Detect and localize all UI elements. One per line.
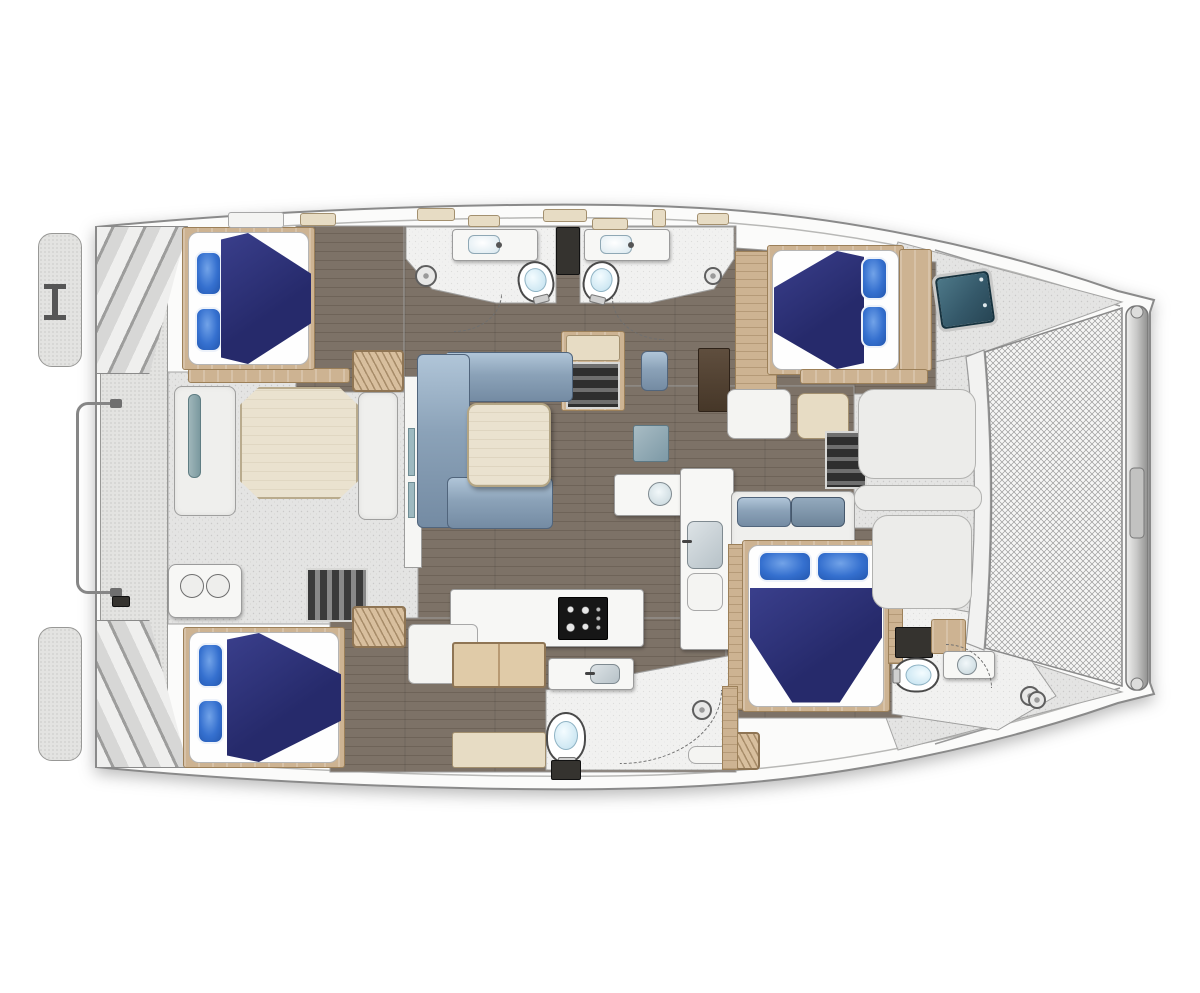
platform-cleat-1 [112,596,130,607]
stbd-fwd-settee-cushion-2 [791,497,845,527]
stbd-head-toilet-base [551,760,581,780]
stbd-hull-wood-strip [722,686,738,770]
port-aft-head-door-arc [454,294,502,332]
floor-plan [0,0,1200,993]
port-companionway-stairs [566,362,620,409]
wardrobe-port-aft [352,350,404,392]
salon-floor-hatch [633,425,669,462]
roof-hatch-6 [652,209,666,227]
port-fwd-head-basin [600,235,632,254]
port-aft-pillow-1 [195,251,222,296]
port-aft-cabin-wall [188,368,350,383]
port-fwd-pillow-1 [861,257,888,300]
stbd-head-sink [590,664,620,684]
roof-hatch-5 [592,218,628,230]
nav-seat-cushion [641,351,668,391]
stbd-fwd-head-vanity-dark [895,627,933,658]
swim-panel-bottom [38,627,82,761]
port-aft-shower-rose [415,265,437,287]
port-fwd-shower-rose [704,267,722,285]
wetbar-basin-right [206,574,230,598]
cockpit-table [240,387,358,499]
port-companionway-landing [566,335,620,361]
galley-sink [687,521,723,569]
salon-door-glass-1 [408,428,415,476]
roof-hatch-7 [697,213,729,225]
port-fwd-pillow-2 [861,305,888,348]
fwd-cockpit-walkway [854,485,982,511]
port-fwd-cabin-wall [800,369,928,384]
roof-hatch-1 [300,213,336,226]
salon-table [467,403,551,487]
salon-door-glass-2 [408,482,415,518]
port-aft-head-toilet [513,257,558,306]
fwd-cockpit-seat-bottom [872,515,972,609]
stern-rail [76,402,116,594]
stbd-aft-pillow-1 [197,643,224,688]
stbd-fwd-pillow-2 [816,551,870,582]
nav-console [698,348,730,412]
port-fwd-headboard-shelf [899,249,932,371]
galley-counter-aft [450,589,644,647]
stbd-hull-drawers [452,642,546,688]
stbd-head-toilet [546,712,586,764]
cockpit-bench-port [174,386,236,516]
foredeck-bolt [1028,691,1046,709]
stbd-fwd-head-toilet [894,658,940,693]
wardrobe-stbd-aft [352,606,406,648]
stbd-hull-bench-low [452,732,546,768]
stbd-fwd-settee-cushion-1 [737,497,791,527]
transom-steps-port [96,226,188,374]
roof-hatch-3 [468,215,500,227]
fwd-door-bench [727,389,791,439]
wetbar-basin-left [180,574,204,598]
roof-hatch-2 [417,208,455,221]
coachroof-fitting [228,212,284,228]
roof-hatch-4 [543,209,587,222]
heads-divider-column [556,227,580,275]
galley-cutting-board [687,573,723,611]
port-aft-pillow-2 [195,307,222,352]
fwd-cockpit-seat-top [858,389,976,479]
cockpit-towel-roll [188,394,201,478]
furniture-layer [0,0,1200,993]
stbd-head-shower-rose [692,700,712,720]
transom-steps-starboard [96,620,188,768]
boarding-ladder [44,284,66,320]
port-aft-head-basin [468,235,500,254]
galley-stove [558,597,608,640]
cockpit-wet-bar [168,564,242,618]
stbd-aft-pillow-2 [197,699,224,744]
galley-round-sink [648,482,672,506]
foredeck-hatch [935,270,996,329]
cockpit-bench-fwd [358,392,398,520]
stbd-fwd-pillow-1 [758,551,812,582]
